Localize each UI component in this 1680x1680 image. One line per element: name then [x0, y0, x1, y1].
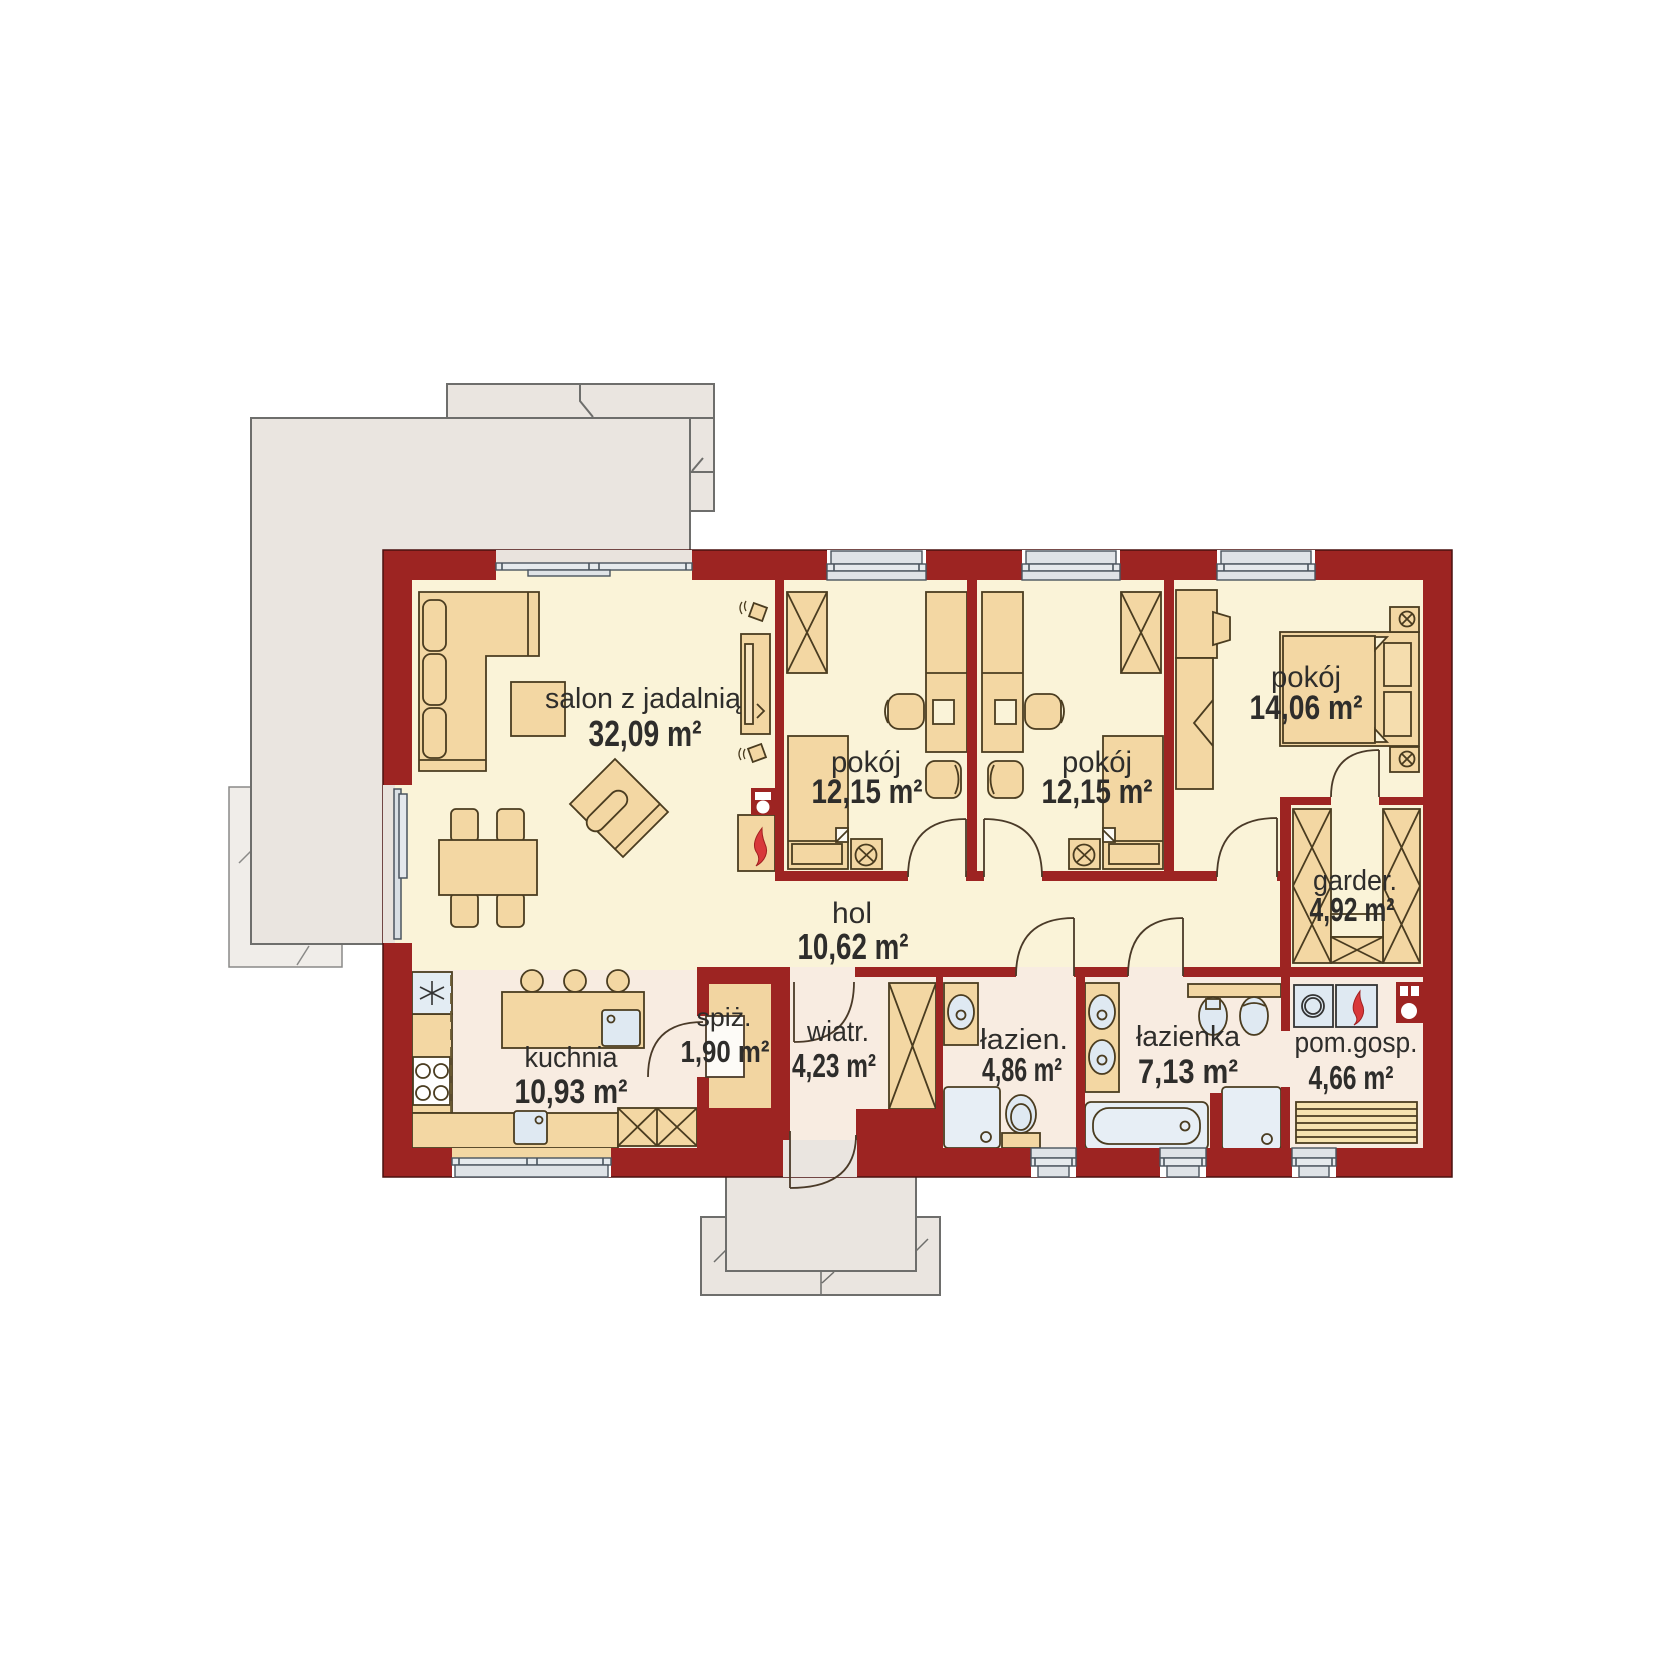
svg-text:4,66 m²: 4,66 m² — [1309, 1059, 1394, 1096]
svg-text:1,90 m²: 1,90 m² — [681, 1034, 770, 1069]
svg-text:łazienka: łazienka — [1136, 1021, 1241, 1053]
svg-text:10,93 m²: 10,93 m² — [515, 1073, 628, 1111]
svg-text:12,15 m²: 12,15 m² — [812, 773, 923, 811]
svg-text:4,86 m²: 4,86 m² — [982, 1051, 1062, 1088]
svg-text:pom.gosp.: pom.gosp. — [1295, 1027, 1418, 1059]
svg-text:14,06 m²: 14,06 m² — [1250, 689, 1363, 727]
svg-text:7,13 m²: 7,13 m² — [1138, 1053, 1238, 1091]
svg-text:4,92 m²: 4,92 m² — [1310, 891, 1395, 928]
svg-text:4,23 m²: 4,23 m² — [792, 1047, 876, 1084]
svg-text:wiatr.: wiatr. — [806, 1016, 869, 1048]
svg-text:12,15 m²: 12,15 m² — [1042, 773, 1153, 811]
svg-text:10,62 m²: 10,62 m² — [798, 926, 909, 967]
svg-text:spiż.: spiż. — [697, 1002, 752, 1032]
svg-text:32,09 m²: 32,09 m² — [589, 713, 702, 754]
svg-text:salon z jadalnią: salon z jadalnią — [545, 683, 742, 715]
svg-text:kuchnia: kuchnia — [525, 1042, 619, 1074]
